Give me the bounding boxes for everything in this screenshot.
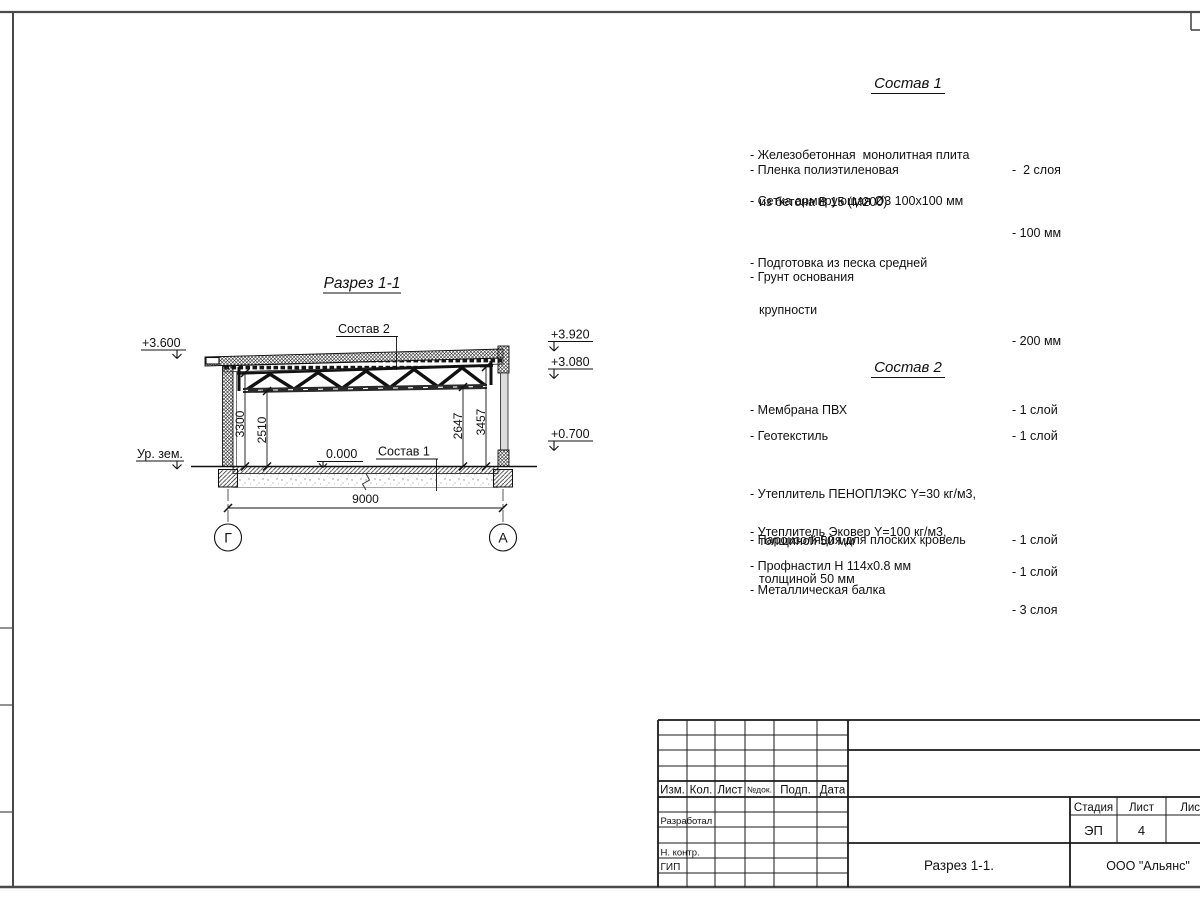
item-value: - 3 слоя — [1012, 603, 1057, 619]
zero-level-label: 0.000 — [326, 447, 357, 461]
tb-row-developed: Разработал — [661, 816, 713, 827]
list-item: - Профнастил Н 114х0.8 мм — [750, 559, 1080, 575]
elev-right-low: +0.700 — [551, 427, 590, 441]
floor-assembly — [191, 467, 537, 491]
tb-company: ООО "Альянс" — [1106, 859, 1190, 873]
tb-sheet-value: 4 — [1138, 823, 1145, 838]
list-item: - Металлическая балка — [750, 583, 1080, 599]
foundation-right — [494, 470, 513, 488]
foundation-left — [219, 470, 238, 488]
tb-row-gip: ГИП — [661, 862, 681, 873]
title-block: Изм. Кол. Лист №док. Подп. Дата Разработ… — [658, 720, 1200, 887]
item-name: - Грунт основания — [750, 270, 1012, 286]
section-view: Разрез 1-1 — [136, 275, 593, 551]
list-item: - Сетка армирующая Ø3 100х100 мм — [750, 194, 1080, 210]
tb-col-izm: Изм. — [660, 785, 685, 797]
tb-col-data: Дата — [820, 785, 846, 797]
list-item: - Утеплитель Эковер Y=100 кг/м3, толщино… — [750, 494, 1080, 618]
ground-level-label: Ур. зем. — [137, 447, 183, 461]
section-title: Разрез 1-1 — [324, 275, 401, 292]
tb-col-podp: Подп. — [780, 785, 811, 797]
tb-sheets-label: Листов — [1180, 802, 1200, 814]
item-value: - 1 слой — [1012, 429, 1058, 445]
item-name: - Металлическая балка — [750, 583, 1012, 599]
item-value: - 1 слой — [1012, 533, 1058, 549]
item-name: - Мембрана ПВХ — [750, 403, 1012, 419]
composition-1-title: Состав 1 — [750, 76, 1066, 92]
composition-2-title: Состав 2 — [750, 360, 1066, 376]
axis-left-label: Г — [224, 530, 232, 546]
tb-row-ncontr: Н. контр. — [661, 848, 700, 859]
item-name: - Железобетонная монолитная плита — [750, 148, 1012, 164]
dim-3300: 3300 — [233, 410, 247, 437]
composition-1-list: Состав 1 - Железобетонная монолитная пли… — [750, 76, 1080, 306]
floor-slab — [233, 467, 498, 474]
list-item: - Пароизоляция для плоских кровель - 1 с… — [750, 533, 1080, 549]
elev-left-top: +3.600 — [142, 336, 181, 350]
tb-col-list: Лист — [718, 785, 744, 797]
item-name: - Сетка армирующая Ø3 100х100 мм — [750, 194, 1012, 210]
roof-edge-detail — [206, 358, 219, 365]
item-name-line2: крупности — [750, 303, 1012, 319]
dim-2510: 2510 — [255, 416, 269, 443]
composition-2-list: Состав 2 - Мембрана ПВХ - 1 слой - Геоте… — [750, 360, 1080, 610]
right-wall-panel — [501, 373, 509, 450]
item-name: - Профнастил Н 114х0.8 мм — [750, 559, 1012, 575]
list-item: - Подготовка из песка средней крупности … — [750, 225, 1080, 349]
item-value: - 2 слоя — [1012, 163, 1061, 179]
list-item: - Мембрана ПВХ - 1 слой — [750, 403, 1080, 419]
dim-3457: 3457 — [474, 408, 488, 435]
elev-right-mid: +3.080 — [551, 355, 590, 369]
axis-markers: Г А — [215, 524, 517, 551]
dim-span: 9000 — [352, 492, 379, 506]
item-value: - 1 слой — [1012, 403, 1058, 419]
right-parapet — [498, 346, 509, 373]
list-item: - Грунт основания — [750, 270, 1080, 286]
left-wall — [223, 366, 234, 467]
tb-stage-label: Стадия — [1074, 802, 1113, 814]
axis-right-label: А — [498, 530, 508, 546]
dim-2647: 2647 — [451, 412, 465, 439]
item-name: - Пленка полиэтиленовая — [750, 163, 1012, 179]
roof-assembly — [205, 349, 503, 372]
tb-doc-title: Разрез 1-1. — [924, 858, 994, 873]
tb-stage-value: ЭП — [1084, 823, 1103, 838]
item-name: - Геотекстиль — [750, 429, 1012, 445]
item-name: - Пароизоляция для плоских кровель — [750, 533, 1012, 549]
right-wall-base — [498, 450, 509, 467]
elev-right-top: +3.920 — [551, 328, 590, 342]
item-value: - 200 мм — [1012, 334, 1061, 350]
sostav1-ref-label: Состав 1 — [378, 445, 430, 459]
list-item: - Геотекстиль - 1 слой — [750, 429, 1080, 445]
list-item: - Железобетонная монолитная плита из бет… — [750, 117, 1080, 241]
sostav2-ref-label: Состав 2 — [338, 322, 390, 336]
tb-col-doc: №док. — [747, 785, 772, 795]
sand-layer — [233, 474, 498, 488]
tb-sheet-label: Лист — [1129, 802, 1155, 814]
list-item: - Пленка полиэтиленовая - 2 слоя — [750, 163, 1080, 179]
tb-col-kol: Кол. — [690, 785, 713, 797]
